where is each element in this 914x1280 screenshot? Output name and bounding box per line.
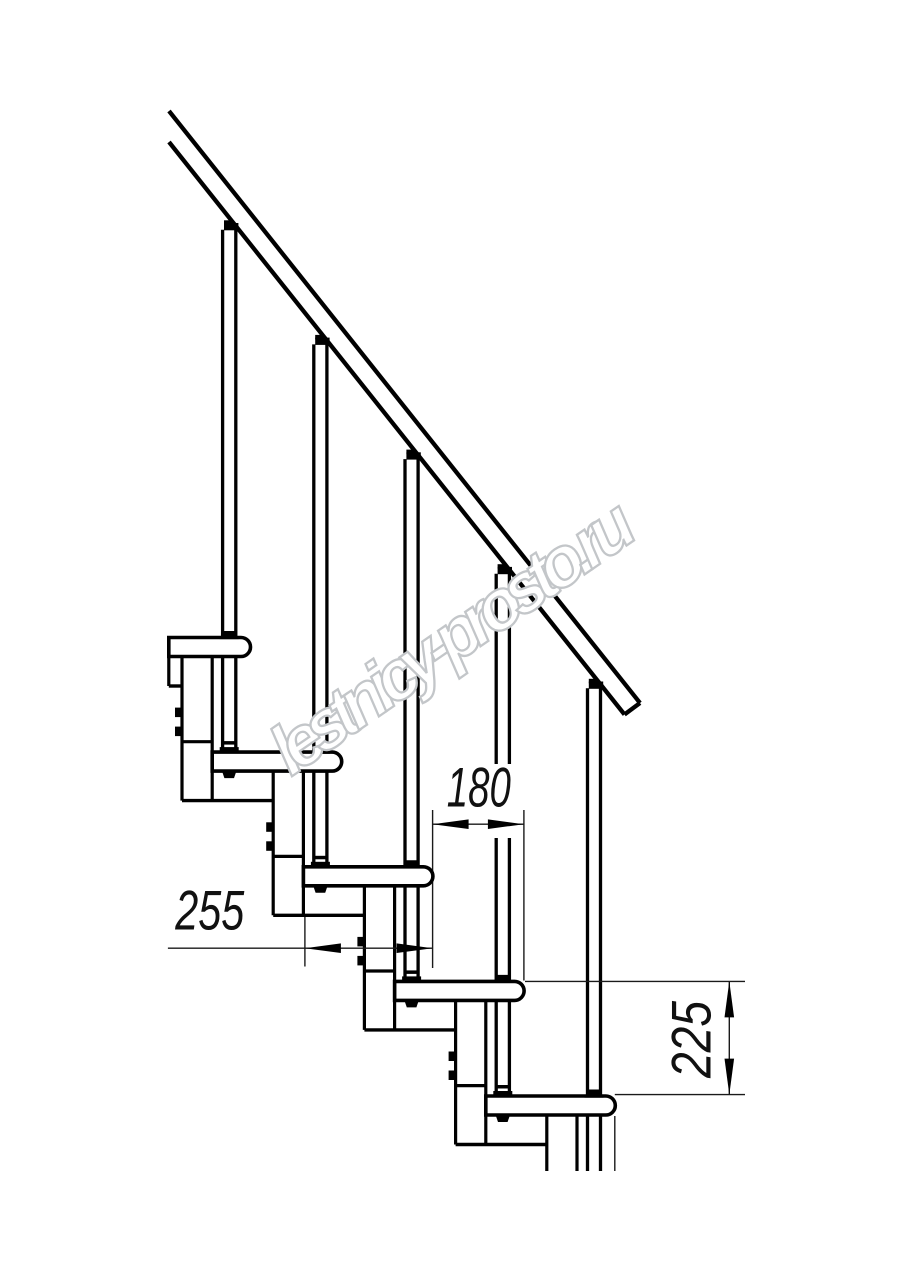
- svg-text:255: 255: [175, 879, 245, 942]
- svg-text:225: 225: [660, 1000, 723, 1079]
- svg-text:180: 180: [447, 756, 511, 819]
